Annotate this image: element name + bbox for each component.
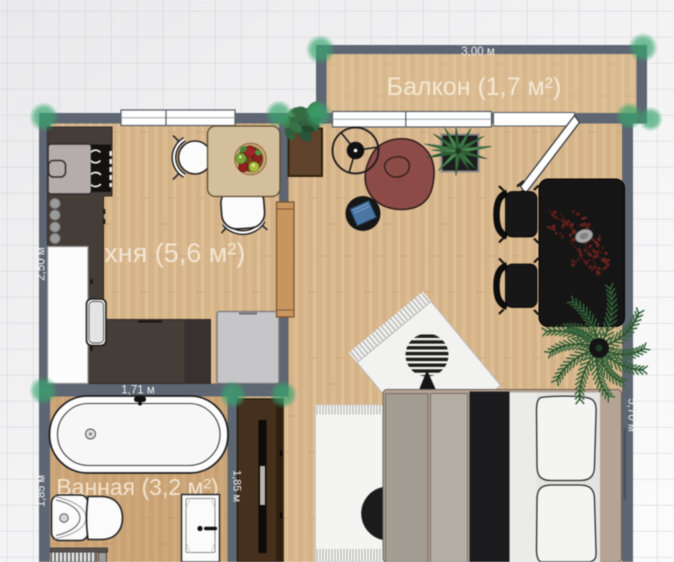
svg-text:1,71 м: 1,71 м (121, 385, 155, 397)
svg-text:5,70 м: 5,70 м (626, 398, 638, 432)
svg-text:1,85 м: 1,85 м (36, 475, 48, 507)
svg-text:1,85 м: 1,85 м (231, 470, 243, 502)
svg-text:2,50 м: 2,50 м (36, 247, 48, 281)
svg-text:3,00 м: 3,00 м (461, 46, 495, 58)
svg-text:Балкон (1,7 м²): Балкон (1,7 м²) (387, 73, 562, 101)
